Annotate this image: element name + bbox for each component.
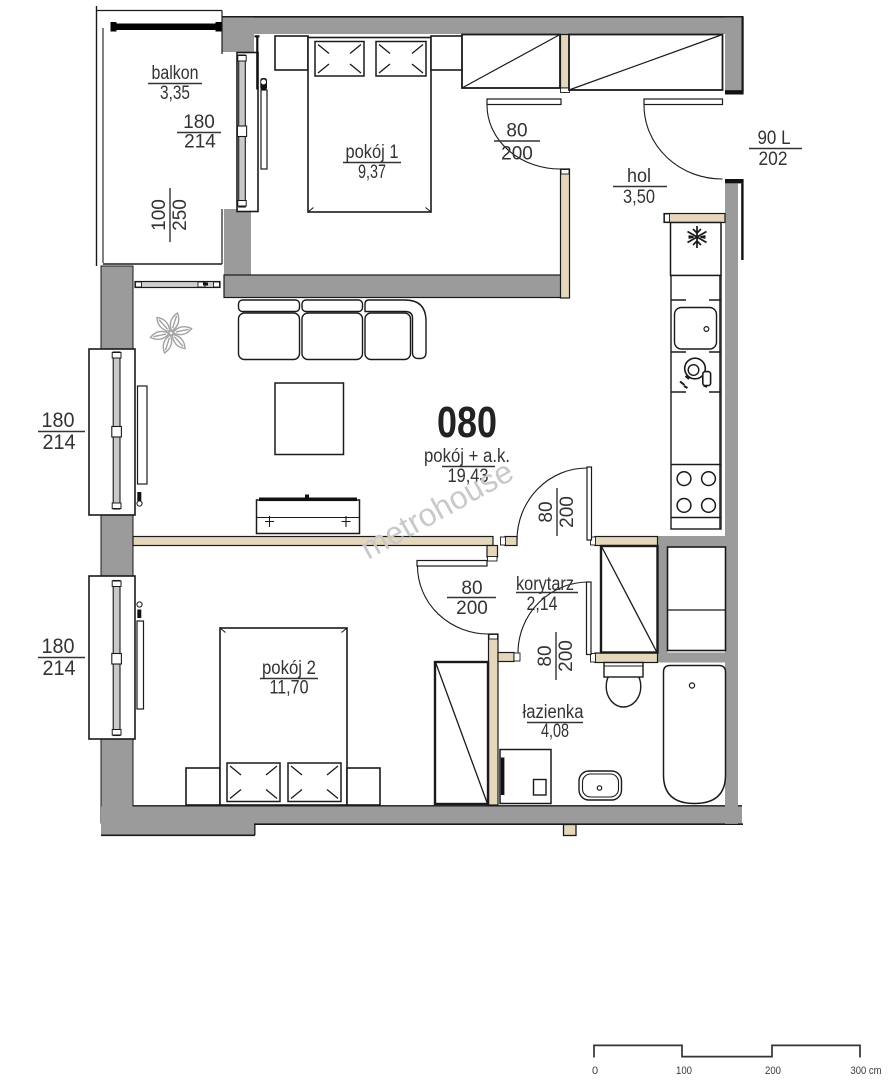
svg-text:200: 200: [557, 496, 578, 528]
svg-text:łazienka: łazienka: [523, 702, 584, 723]
svg-text:4,08: 4,08: [541, 721, 569, 742]
svg-text:200: 200: [501, 144, 533, 165]
svg-text:80: 80: [535, 645, 556, 666]
svg-text:3,35: 3,35: [160, 83, 190, 104]
svg-text:pokój 2: pokój 2: [262, 658, 316, 679]
svg-text:250: 250: [170, 199, 191, 231]
svg-text:80: 80: [506, 121, 527, 142]
svg-text:balkon: balkon: [152, 63, 199, 84]
svg-text:9,37: 9,37: [358, 162, 386, 183]
svg-text:180: 180: [42, 409, 75, 432]
svg-text:200: 200: [456, 598, 488, 619]
svg-text:80: 80: [461, 578, 482, 599]
svg-text:214: 214: [43, 431, 76, 454]
svg-text:214: 214: [43, 657, 76, 680]
svg-text:300 cm: 300 cm: [851, 1065, 882, 1077]
svg-text:3,50: 3,50: [623, 187, 655, 208]
svg-text:214: 214: [184, 132, 216, 153]
svg-text:pokój 1: pokój 1: [346, 142, 399, 163]
svg-text:2,14: 2,14: [527, 594, 558, 615]
svg-text:080: 080: [437, 398, 497, 447]
svg-text:200: 200: [765, 1065, 781, 1077]
svg-text:202: 202: [759, 149, 788, 170]
svg-text:90 L: 90 L: [758, 128, 791, 149]
svg-text:180: 180: [42, 635, 75, 658]
svg-text:200: 200: [556, 640, 577, 672]
svg-text:180: 180: [183, 112, 215, 133]
svg-text:100: 100: [676, 1065, 692, 1077]
svg-text:hol: hol: [627, 166, 651, 187]
svg-text:11,70: 11,70: [270, 678, 309, 699]
svg-text:100: 100: [149, 199, 170, 231]
svg-text:0: 0: [592, 1065, 598, 1077]
svg-text:80: 80: [536, 501, 557, 522]
